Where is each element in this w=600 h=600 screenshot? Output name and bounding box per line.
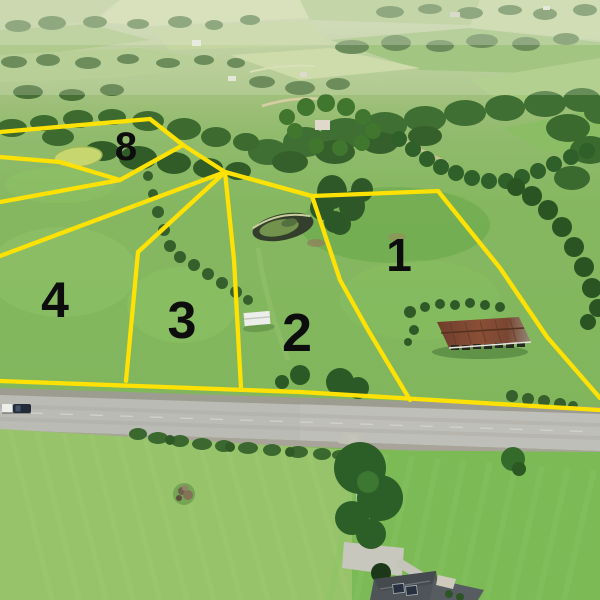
pickup-truck [2,404,31,414]
lot-8-label: 8 [115,127,137,167]
lot-3-label: 3 [168,295,197,347]
lot-4-label: 4 [41,275,69,325]
brush-pile [173,483,195,505]
photo-render [0,0,600,600]
barn [432,317,531,359]
lot-2-label: 2 [282,306,312,360]
mud-patch [307,239,325,247]
lot-1-label: 1 [386,232,412,278]
aerial-photo: 8 4 3 2 1 [0,0,600,600]
distance-haze-far [0,0,600,45]
